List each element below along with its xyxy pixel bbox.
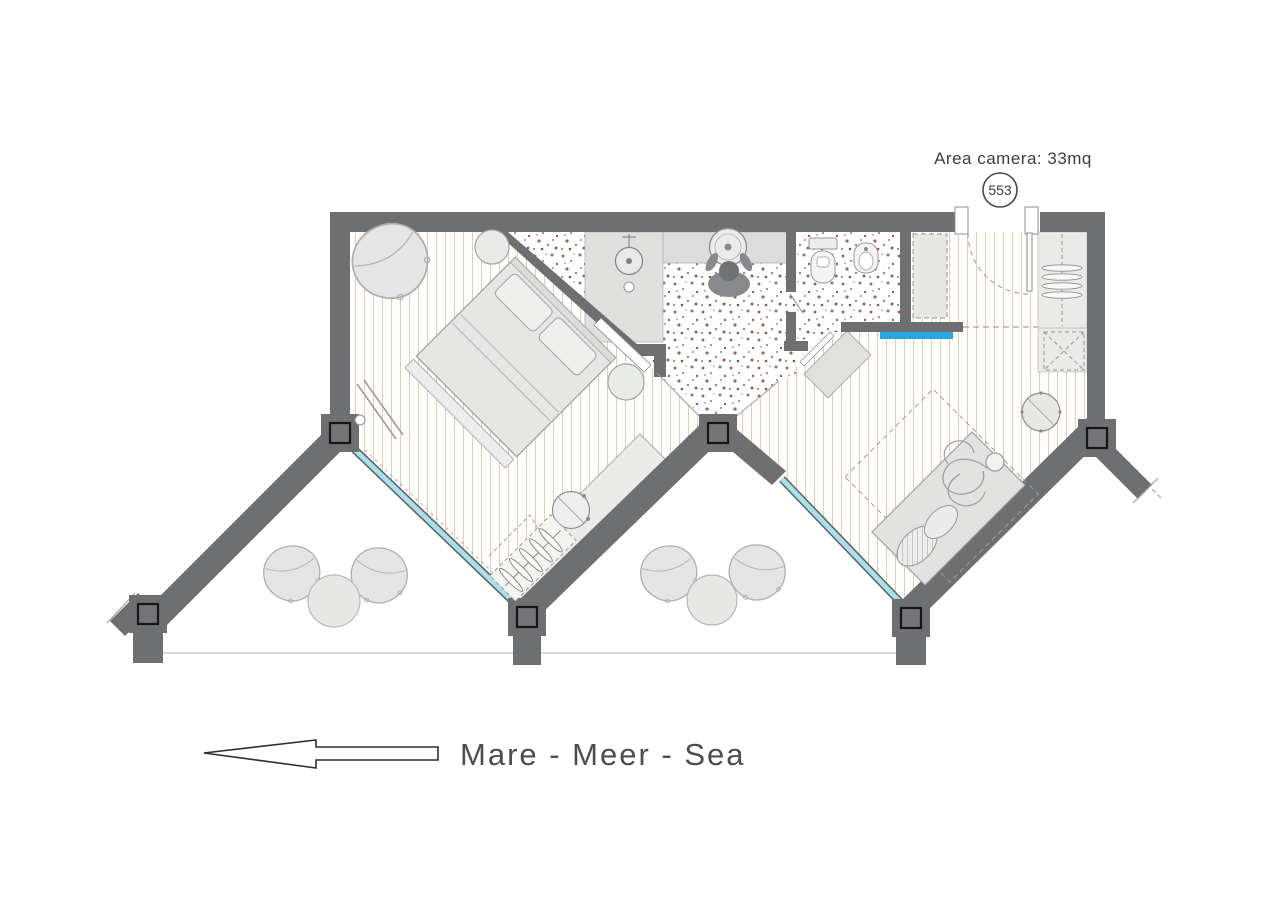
side-stool bbox=[608, 364, 644, 400]
bidet bbox=[854, 243, 878, 273]
door-jamb-right bbox=[1025, 207, 1038, 234]
pillar bbox=[129, 595, 167, 633]
stool bbox=[475, 230, 509, 264]
wc-right-wall bbox=[900, 232, 911, 322]
top-wall-left bbox=[330, 212, 963, 232]
pillar bbox=[321, 414, 359, 452]
pillar bbox=[699, 414, 737, 452]
area-label: Area camera: 33mq bbox=[934, 149, 1092, 168]
pillar bbox=[508, 598, 546, 636]
floor-plan-page: Area camera: 33mq 553 Mare - Meer - Sea bbox=[0, 0, 1272, 900]
room-number-label: 553 bbox=[988, 182, 1012, 198]
balcony-table bbox=[687, 575, 737, 625]
pillar-stub-bedroom bbox=[513, 633, 541, 665]
shower-drain bbox=[624, 282, 634, 292]
pillar bbox=[892, 599, 930, 637]
right-wall bbox=[1087, 232, 1105, 440]
hall-wall bbox=[841, 322, 963, 332]
pillar bbox=[1078, 419, 1116, 457]
wc-wall-lower bbox=[786, 312, 796, 342]
room-number-badge: 553 bbox=[983, 173, 1017, 207]
shower-head-center bbox=[626, 258, 632, 264]
top-wall-right bbox=[1040, 212, 1105, 232]
washbasin-drain bbox=[725, 244, 732, 251]
floor-plan: Area camera: 33mq 553 Mare - Meer - Sea bbox=[0, 0, 1272, 900]
toilet bbox=[809, 238, 837, 283]
pillar-stub-left bbox=[133, 629, 163, 663]
door-jamb-left bbox=[955, 207, 968, 234]
wardrobe-area bbox=[1038, 232, 1087, 372]
pillar-stub-living bbox=[896, 634, 926, 665]
sea-direction-label: Mare - Meer - Sea bbox=[460, 737, 746, 772]
wc-wall-upper bbox=[786, 232, 796, 292]
door-leaf bbox=[1027, 233, 1032, 291]
balcony-table bbox=[308, 575, 360, 627]
left-wall bbox=[330, 212, 350, 443]
hall-cabinet bbox=[913, 234, 947, 318]
blue-accent-shelf bbox=[880, 332, 953, 339]
wc-wall-corner bbox=[784, 341, 808, 351]
